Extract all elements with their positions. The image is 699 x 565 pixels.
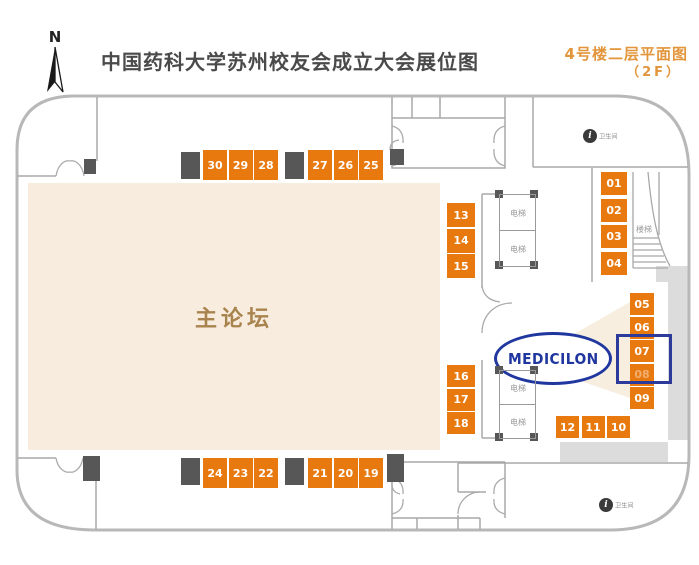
stairs-icon bbox=[633, 172, 670, 268]
booth-18: 18 bbox=[447, 412, 475, 434]
compass-arrow-icon bbox=[47, 47, 63, 92]
booth-row-top-right: 272625 bbox=[308, 150, 383, 180]
elevator-label: 电梯 bbox=[510, 382, 526, 394]
facility-poi-top-right: i 卫生间 bbox=[583, 128, 629, 143]
floor-plan: N 中国药科大学苏州校友会成立大会展位图 4号楼二层平面图 （2F） 主论坛 bbox=[0, 0, 699, 565]
elevator-label: 电梯 bbox=[510, 207, 526, 219]
facility-label: 卫生间 bbox=[615, 500, 634, 509]
booth-19: 19 bbox=[359, 458, 383, 488]
pillar bbox=[181, 152, 200, 179]
elevator-cell: 电梯 bbox=[500, 404, 535, 438]
booth-12: 12 bbox=[556, 416, 579, 438]
highlighted-booth-indicator bbox=[616, 334, 672, 384]
booth-15: 15 bbox=[447, 254, 475, 278]
facility-icon: i bbox=[583, 129, 597, 143]
booth-row-top-left: 302928 bbox=[203, 150, 278, 180]
booth-row-12-10: 121110 bbox=[556, 416, 630, 438]
booth-25: 25 bbox=[359, 150, 383, 180]
booth-col-01-04: 01020304 bbox=[601, 172, 627, 275]
facility-icon: i bbox=[599, 498, 613, 512]
booth-22: 22 bbox=[254, 458, 278, 488]
door-arcs bbox=[56, 126, 512, 514]
booth-09: 09 bbox=[630, 387, 654, 409]
pillar bbox=[387, 454, 404, 482]
booth-02: 02 bbox=[601, 199, 627, 222]
elevator-cell: 电梯 bbox=[500, 371, 535, 404]
booth-13: 13 bbox=[447, 203, 475, 227]
elevator-bank-lower: 电梯 电梯 bbox=[499, 370, 536, 439]
facility-label: 卫生间 bbox=[599, 131, 618, 140]
booth-04: 04 bbox=[601, 252, 627, 275]
booth-row-bottom-left: 242322 bbox=[203, 458, 278, 488]
pillar bbox=[181, 458, 200, 485]
booth-05: 05 bbox=[630, 293, 654, 315]
booth-26: 26 bbox=[334, 150, 358, 180]
stairs-label: 楼梯 bbox=[636, 223, 652, 235]
booth-30: 30 bbox=[203, 150, 227, 180]
elevator-cell: 电梯 bbox=[500, 230, 535, 266]
booth-20: 20 bbox=[334, 458, 358, 488]
elevator-label: 电梯 bbox=[510, 416, 526, 428]
elevator-cell: 电梯 bbox=[500, 195, 535, 230]
pillar bbox=[285, 152, 304, 179]
booth-03: 03 bbox=[601, 225, 627, 248]
booth-17: 17 bbox=[447, 389, 475, 411]
booth-21: 21 bbox=[308, 458, 332, 488]
booth-col-13-15: 131415 bbox=[447, 203, 475, 278]
elevator-label: 电梯 bbox=[510, 243, 526, 255]
elevator-bank-upper: 电梯 电梯 bbox=[499, 194, 536, 267]
booth-row-bottom-right: 212019 bbox=[308, 458, 383, 488]
booth-16: 16 bbox=[447, 365, 475, 387]
booth-col-16-18: 161718 bbox=[447, 365, 475, 434]
booth-10: 10 bbox=[607, 416, 630, 438]
booth-24: 24 bbox=[203, 458, 227, 488]
booth-27: 27 bbox=[308, 150, 332, 180]
medicilon-logo-text: MEDICILON bbox=[508, 350, 599, 368]
booth-28: 28 bbox=[254, 150, 278, 180]
pillar bbox=[84, 159, 96, 174]
pillar bbox=[83, 456, 100, 481]
booth-14: 14 bbox=[447, 229, 475, 253]
facility-poi-bottom-right: i 卫生间 bbox=[599, 497, 645, 512]
booth-01: 01 bbox=[601, 172, 627, 195]
pillar bbox=[390, 149, 404, 165]
booth-11: 11 bbox=[582, 416, 605, 438]
booth-23: 23 bbox=[229, 458, 253, 488]
pillar bbox=[285, 458, 304, 485]
booth-29: 29 bbox=[229, 150, 253, 180]
